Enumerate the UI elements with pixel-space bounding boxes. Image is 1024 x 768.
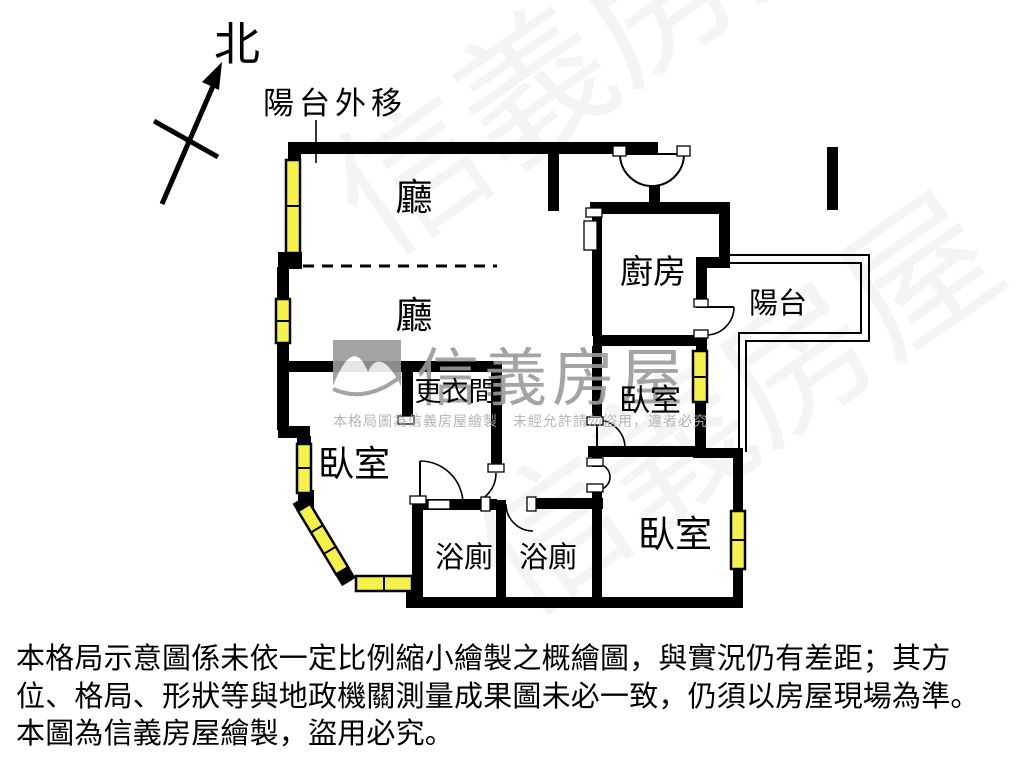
window-bedroom-right [731, 511, 745, 569]
wall-bottom [410, 597, 743, 608]
disclaimer-line-1: 本格局示意圖係未依一定比例縮小繪製之概繪圖，與實況仍有差距；其方 [16, 641, 1018, 679]
disclaimer-line-2: 位、格局、形狀等與地政機關測量成果圖未必一致，仍須以房屋現場為準。 [16, 679, 1018, 717]
disclaimer: 本格局示意圖係未依一定比例縮小繪製之概繪圖，與實況仍有差距；其方 位、格局、形狀… [16, 641, 1018, 754]
label-closet: 更衣間 [415, 377, 496, 407]
disclaimer-line-3: 本圖為信義房屋繪製，盜用必究。 [16, 716, 1018, 754]
window-kitchen-pass [584, 221, 597, 250]
north-arrow-shaft [162, 86, 213, 204]
window-bedroom-left-diagonal [293, 496, 356, 587]
window-hall-left-2 [276, 299, 290, 343]
wall-bath-divider [496, 500, 506, 600]
wall-lone-stub [827, 147, 838, 210]
wall-bed-divider [588, 446, 698, 457]
label-bedroom-middle: 臥室 [619, 383, 681, 418]
wall-left-jog1 [278, 252, 302, 269]
wall-closet-left [402, 372, 413, 420]
window-bedroom-left-1 [297, 444, 311, 493]
window-bedroom-left-bottom [356, 576, 412, 591]
label-hall-lower: 廳 [396, 295, 433, 337]
wall-bath2-top [530, 498, 603, 509]
floor-plan-page: 信義房屋 信義房屋 [0, 0, 1024, 768]
label-kitchen: 廚房 [620, 254, 686, 291]
label-bath-left: 浴廁 [435, 541, 493, 574]
label-bedroom-left: 臥室 [318, 444, 390, 484]
balcony-moved-label: 陽台外移 [263, 86, 407, 121]
compass: 北 [154, 19, 260, 204]
wall-brbed-right-upper [733, 456, 743, 516]
window-bedroom-middle [693, 351, 707, 402]
sinyi-logo [333, 340, 401, 407]
label-hall-upper: 廳 [396, 177, 433, 219]
label-bath-right: 浴廁 [519, 541, 577, 574]
kitchen-opening-jamb [586, 208, 602, 217]
wall-top [288, 142, 658, 154]
north-label: 北 [214, 19, 260, 70]
wall-kitchen-right [719, 202, 730, 265]
label-balcony: 陽台 [749, 287, 807, 320]
wall-hall-right [548, 142, 559, 211]
window-hall-left [286, 160, 300, 253]
wall-left-mid [277, 267, 289, 302]
label-bedroom-right: 臥室 [638, 514, 712, 556]
window-bath-vent [428, 500, 450, 509]
floor-plan-drawing: 信義房屋 信義房屋 [0, 0, 1024, 640]
wall-left-lower [277, 341, 289, 430]
